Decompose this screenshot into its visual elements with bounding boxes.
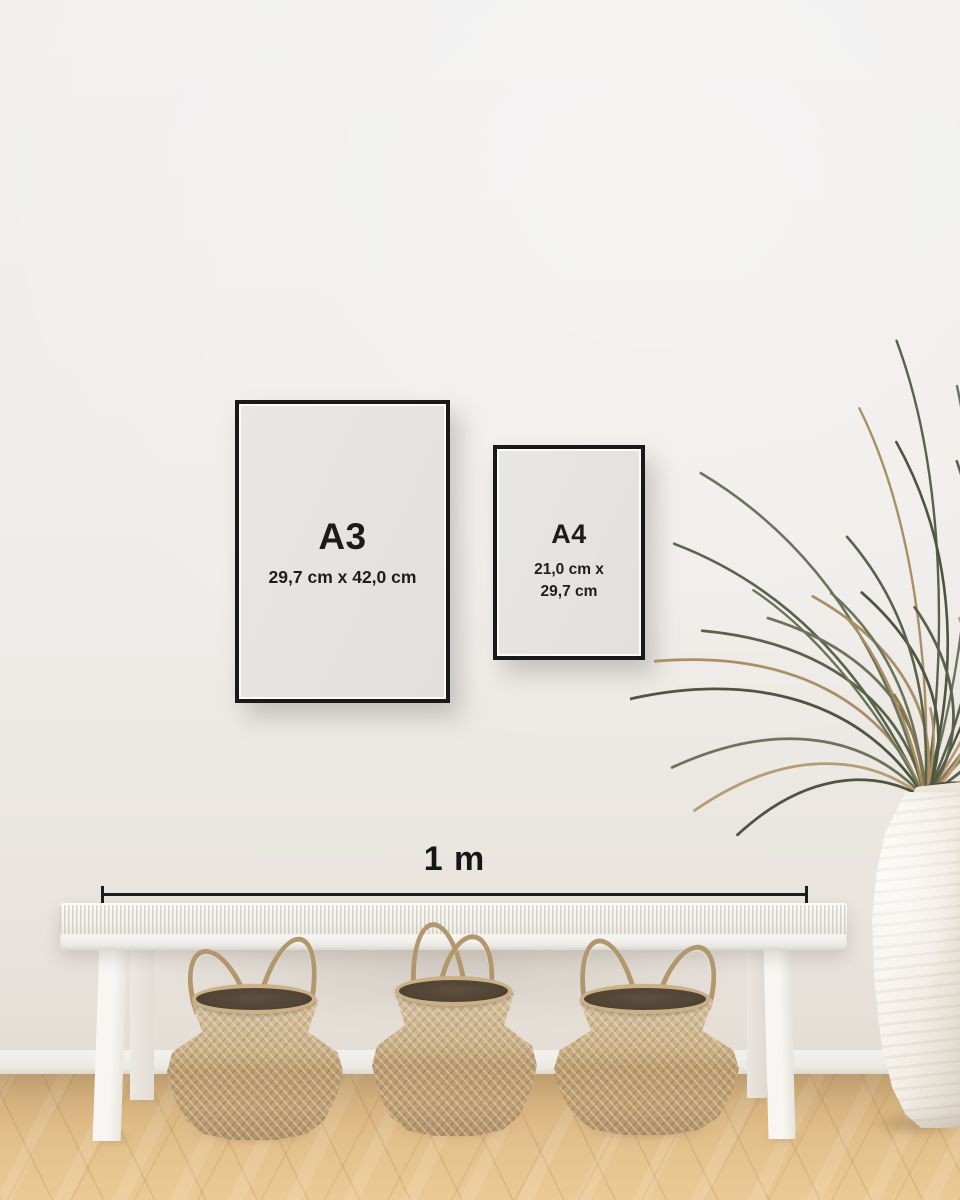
seagrass-basket-middle [372, 944, 537, 1136]
room-scene: A3 29,7 cm x 42,0 cm A4 21,0 cm x 29,7 c… [0, 0, 960, 1200]
a3-size-label: A3 [269, 516, 417, 558]
basket-body [372, 986, 537, 1136]
a3-frame-content: A3 29,7 cm x 42,0 cm [269, 516, 417, 588]
a4-dimensions-line2: 29,7 cm [534, 581, 604, 603]
a3-dimensions-text: 29,7 cm x 42,0 cm [269, 567, 417, 588]
a3-frame: A3 29,7 cm x 42,0 cm [235, 400, 450, 703]
seagrass-basket-left [167, 952, 343, 1140]
a4-dimensions-text: 21,0 cm x 29,7 cm [534, 559, 604, 602]
basket-opening [192, 984, 316, 1014]
a4-frame: A4 21,0 cm x 29,7 cm [493, 445, 645, 660]
a4-dimensions-line1: 21,0 cm x [534, 559, 604, 581]
a4-frame-content: A4 21,0 cm x 29,7 cm [534, 519, 604, 602]
basket-body [167, 994, 343, 1140]
basket-opening [395, 976, 512, 1006]
bench-leg-left-back [130, 946, 154, 1100]
a4-size-label: A4 [534, 519, 604, 550]
